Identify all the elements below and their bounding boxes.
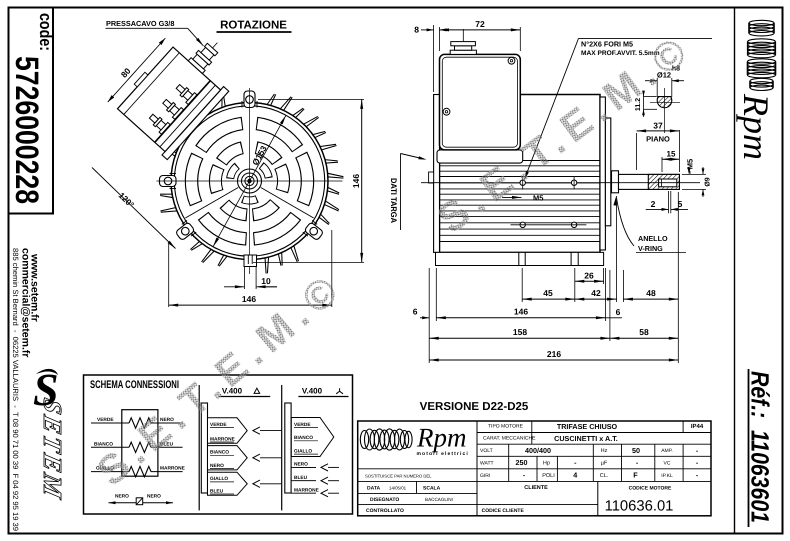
svg-text:146: 146 [351, 174, 361, 188]
svg-text:158: 158 [513, 327, 527, 337]
svg-text:PIANO: PIANO [646, 135, 670, 144]
svg-text:DATA: DATA [367, 486, 381, 492]
svg-text:IP44: IP44 [691, 423, 704, 430]
svg-text:GIALLO: GIALLO [210, 476, 228, 482]
svg-text:M5: M5 [686, 159, 695, 169]
svg-text:PRESSACAVO G3/8: PRESSACAVO G3/8 [106, 19, 174, 28]
svg-text:DATI TARGA: DATI TARGA [389, 178, 398, 223]
svg-text:GIALLO: GIALLO [294, 448, 312, 454]
svg-text:SETEM: SETEM [38, 396, 67, 504]
svg-text:CARAT. MECCANICHE: CARAT. MECCANICHE [483, 436, 536, 442]
svg-text:NERO: NERO [147, 494, 161, 500]
svg-text:DISEGNATO: DISEGNATO [370, 497, 399, 503]
svg-text:37: 37 [653, 121, 663, 131]
svg-text:146: 146 [514, 307, 528, 317]
svg-text:2: 2 [651, 199, 656, 209]
svg-text:BLEU: BLEU [294, 475, 308, 481]
svg-text:5726000228: 5726000228 [9, 56, 45, 204]
svg-text:26: 26 [584, 271, 594, 281]
svg-text:VERDE: VERDE [97, 417, 114, 423]
svg-text:110636.01: 110636.01 [605, 499, 674, 515]
svg-text:NERO: NERO [210, 463, 224, 469]
svg-text:VC: VC [664, 460, 671, 466]
svg-text:VERDE: VERDE [210, 422, 227, 428]
svg-text:Hz: Hz [601, 448, 608, 454]
svg-text:6: 6 [413, 307, 418, 317]
svg-text:IP.KL: IP.KL [661, 473, 673, 479]
svg-text:WATT: WATT [480, 460, 494, 466]
svg-text:Ø9: Ø9 [704, 177, 712, 186]
svg-text:MARRONE: MARRONE [294, 488, 320, 494]
svg-text:8: 8 [414, 25, 419, 35]
svg-text:15: 15 [667, 150, 676, 159]
svg-text:SOSTITUISCE PAR NUMERO DEL: SOSTITUISCE PAR NUMERO DEL [365, 473, 432, 478]
svg-text:BIANCO: BIANCO [294, 435, 313, 441]
svg-text:CLIENTE: CLIENTE [524, 485, 548, 491]
svg-text:6: 6 [616, 307, 621, 317]
svg-text:250: 250 [516, 458, 528, 467]
svg-text:CUSCINETTI x A.T.: CUSCINETTI x A.T. [554, 434, 618, 443]
svg-text:Réf.: 11063601: Réf.: 11063601 [746, 371, 774, 523]
svg-text:72: 72 [475, 19, 485, 29]
svg-text:CL.: CL. [600, 473, 609, 479]
svg-text:code:: code: [36, 13, 55, 51]
svg-text:motori elettrici: motori elettrici [417, 451, 469, 457]
svg-text:10: 10 [261, 276, 271, 286]
svg-text:commercial@setem.fr: commercial@setem.fr [20, 248, 32, 357]
svg-text:146: 146 [242, 294, 256, 304]
svg-text:42: 42 [591, 288, 601, 298]
svg-text:ANELLO: ANELLO [638, 234, 668, 243]
svg-text:VOLT: VOLT [480, 448, 493, 454]
svg-text:POLI: POLI [542, 473, 555, 479]
svg-text:48: 48 [646, 288, 656, 298]
svg-text:GIRI: GIRI [480, 473, 490, 479]
svg-text:SCALA: SCALA [423, 486, 441, 492]
svg-text:TRIFASE CHIUSO: TRIFASE CHIUSO [557, 422, 618, 431]
svg-text:µF: µF [601, 460, 608, 466]
svg-text:58: 58 [639, 327, 649, 337]
svg-text:BACCAGLINI: BACCAGLINI [425, 497, 453, 502]
svg-text:N°2X6 FORI M5: N°2X6 FORI M5 [581, 40, 633, 49]
svg-text:4: 4 [573, 470, 577, 479]
svg-text:BIANCO: BIANCO [210, 450, 229, 456]
svg-text:V-RING: V-RING [638, 244, 663, 253]
svg-text:CODICE MOTORE: CODICE MOTORE [629, 486, 672, 492]
svg-text:Hp: Hp [543, 460, 550, 466]
svg-text:400/400: 400/400 [525, 446, 551, 455]
svg-text:M5: M5 [533, 194, 543, 203]
svg-text:14/05/01: 14/05/01 [389, 486, 407, 491]
svg-text:TIPO MOTORE: TIPO MOTORE [488, 424, 524, 430]
svg-text:V.400: V.400 [302, 387, 323, 396]
svg-text:NERO: NERO [294, 462, 308, 468]
svg-text:ROTAZIONE: ROTAZIONE [220, 20, 287, 32]
svg-text:CONTROLLATO: CONTROLLATO [366, 508, 404, 514]
svg-text:VERDE: VERDE [294, 422, 311, 428]
svg-text:F: F [633, 470, 638, 479]
svg-text:885 chemin St Bernard - 0622: 885 chemin St Bernard - 06225 VALLAURIS … [11, 248, 20, 531]
svg-text:CODICE CLIENTE: CODICE CLIENTE [482, 508, 525, 514]
svg-text:MARRONE: MARRONE [160, 466, 186, 472]
svg-text:SCHEMA CONNESSIONI: SCHEMA CONNESSIONI [90, 379, 179, 391]
svg-text:45: 45 [543, 288, 553, 298]
svg-text:VERSIONE D22-D25: VERSIONE D22-D25 [420, 401, 529, 413]
svg-text:AMP.: AMP. [661, 448, 673, 454]
svg-text:MARRONE: MARRONE [210, 436, 236, 442]
svg-text:Rpm: Rpm [736, 93, 776, 160]
svg-text:216: 216 [547, 349, 561, 359]
svg-text:50: 50 [632, 446, 640, 455]
svg-text:BLEU: BLEU [210, 488, 224, 494]
svg-text:Rpm: Rpm [416, 423, 467, 453]
